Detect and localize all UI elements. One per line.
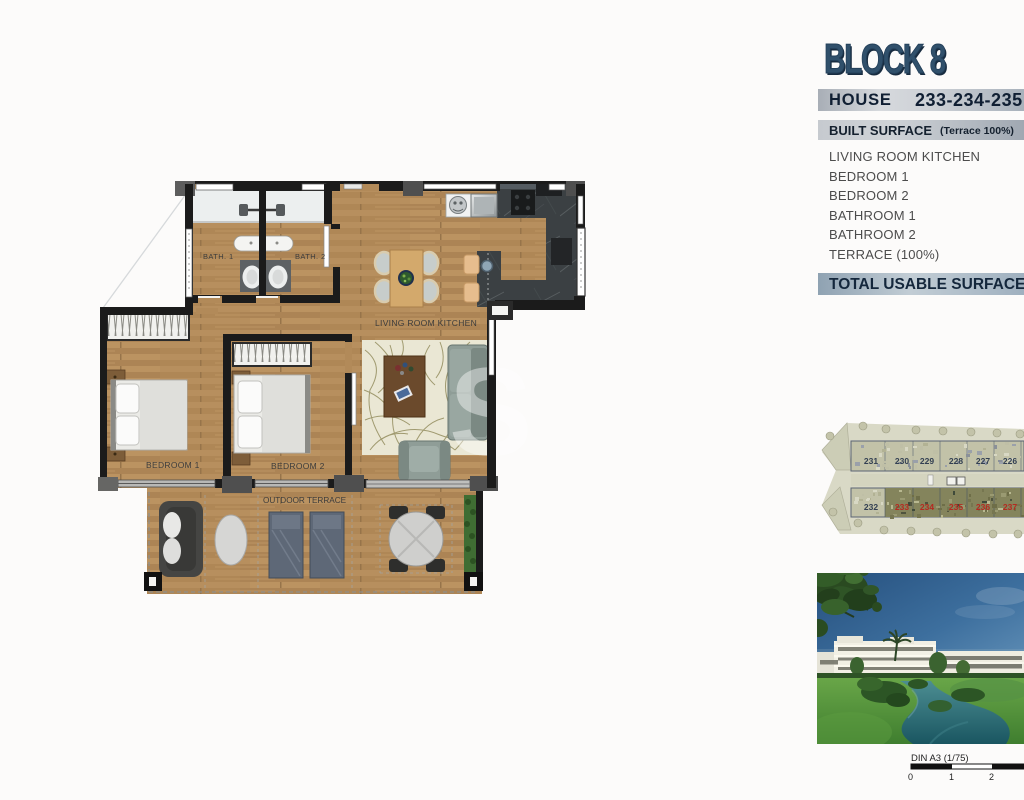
svg-text:OUTDOOR TERRACE: OUTDOOR TERRACE — [263, 496, 347, 505]
svg-text:BATH. 2: BATH. 2 — [295, 252, 326, 261]
svg-text:236: 236 — [976, 502, 990, 512]
svg-text:230: 230 — [895, 456, 909, 466]
svg-text:0: 0 — [908, 772, 913, 782]
svg-text:228: 228 — [949, 456, 963, 466]
svg-text:234: 234 — [920, 502, 934, 512]
svg-text:232: 232 — [864, 502, 878, 512]
svg-text:BEDROOM 2: BEDROOM 2 — [271, 461, 325, 471]
svg-text:226: 226 — [1003, 456, 1017, 466]
svg-text:237: 237 — [1003, 502, 1017, 512]
svg-text:235: 235 — [949, 502, 963, 512]
svg-text:LIVING ROOM KITCHEN: LIVING ROOM KITCHEN — [375, 318, 477, 328]
svg-text:227: 227 — [976, 456, 990, 466]
svg-text:2: 2 — [989, 772, 994, 782]
svg-text:229: 229 — [920, 456, 934, 466]
svg-text:DIN A3 (1/75): DIN A3 (1/75) — [911, 753, 969, 764]
svg-text:231: 231 — [864, 456, 878, 466]
svg-text:BATH. 1: BATH. 1 — [203, 252, 234, 261]
svg-text:1: 1 — [949, 772, 954, 782]
svg-text:BEDROOM 1: BEDROOM 1 — [146, 460, 200, 470]
svg-text:233: 233 — [895, 502, 909, 512]
